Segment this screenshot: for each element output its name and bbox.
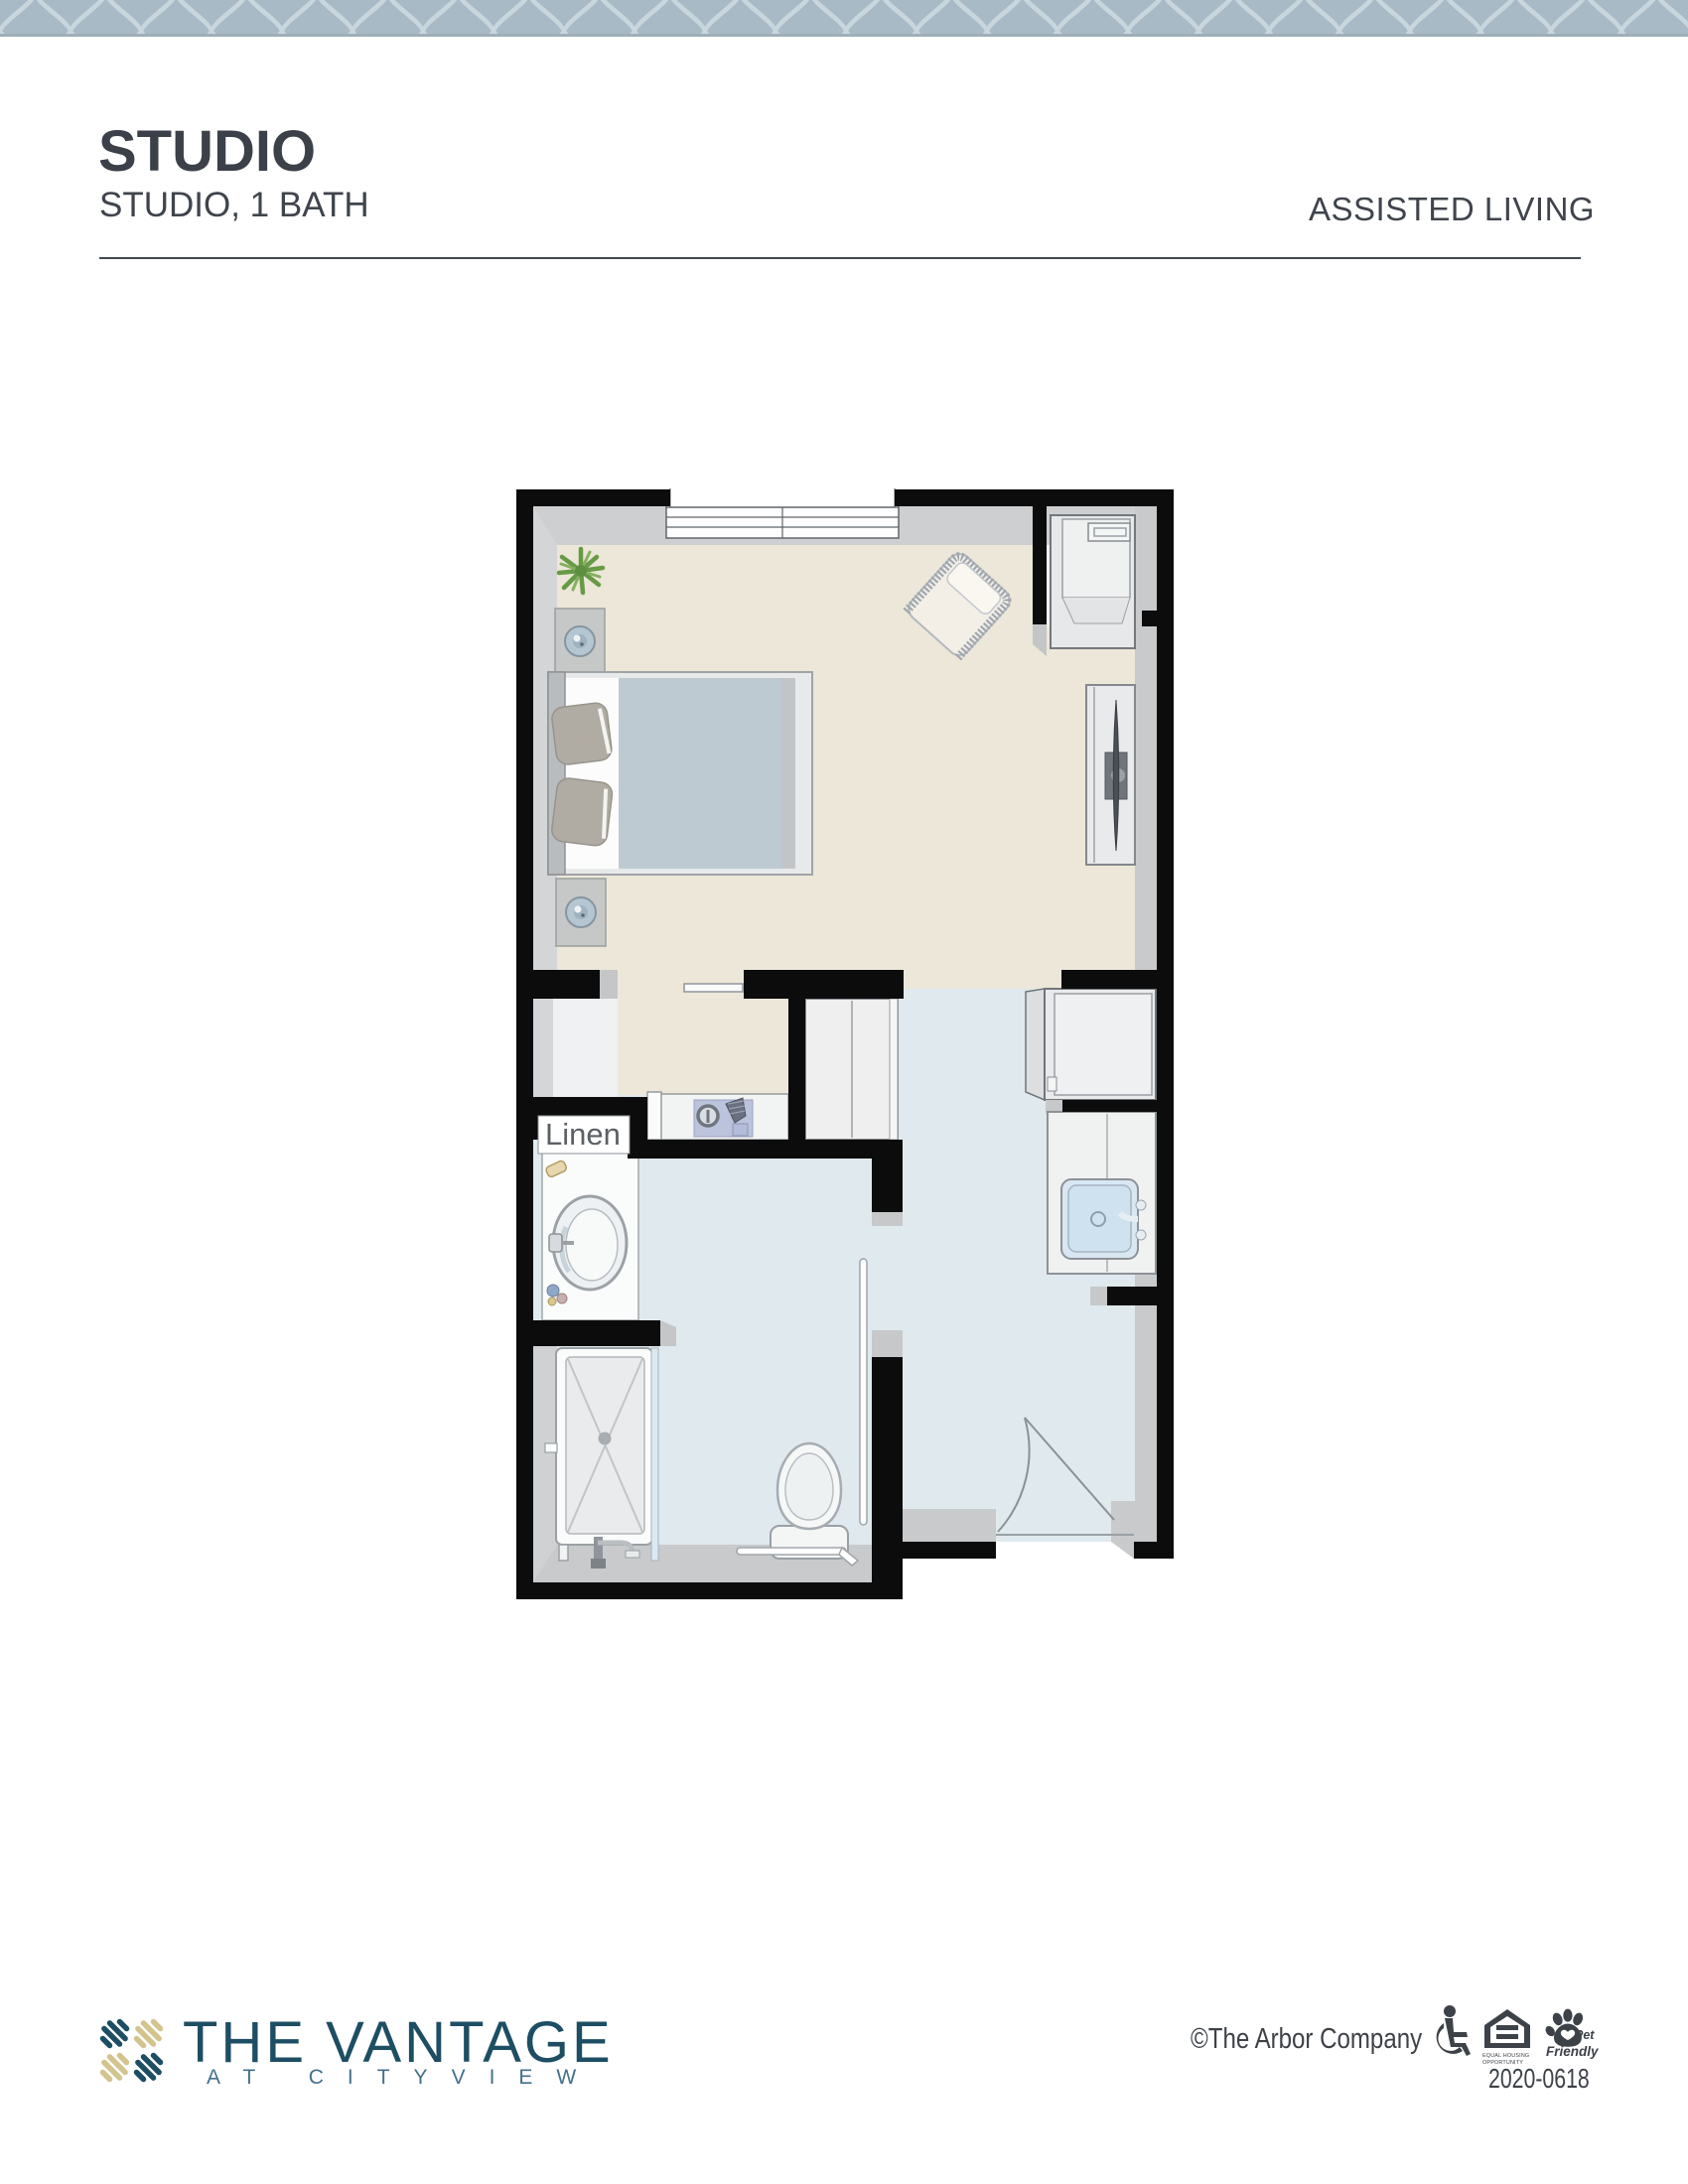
svg-text:Friendly: Friendly xyxy=(1546,2044,1600,2059)
svg-text:Pet: Pet xyxy=(1575,2028,1595,2042)
svg-text:EQUAL HOUSING: EQUAL HOUSING xyxy=(1482,2053,1529,2059)
